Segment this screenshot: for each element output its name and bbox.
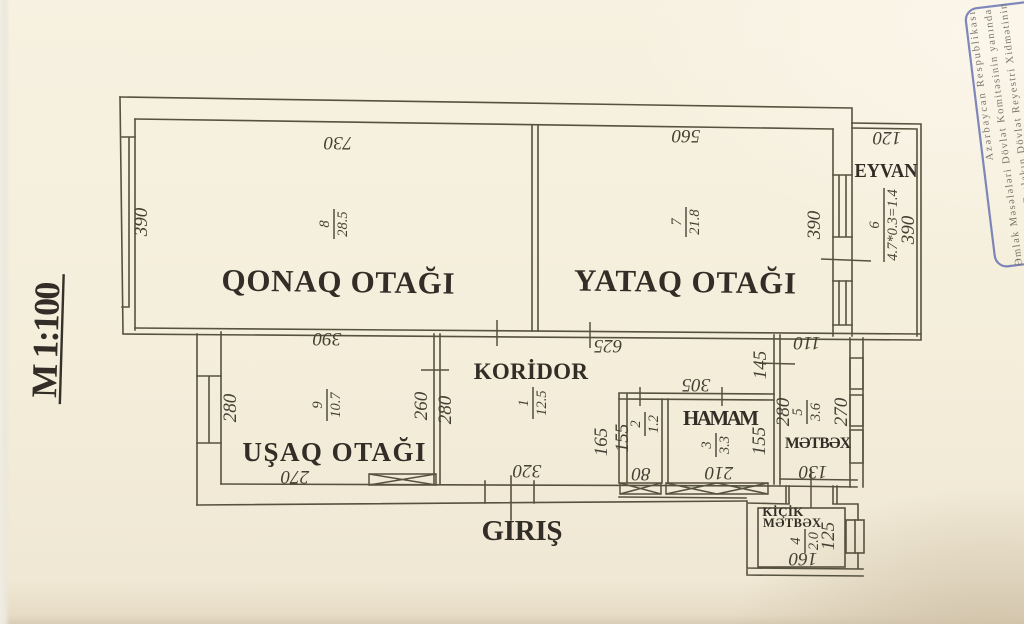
svg-text:160: 160: [788, 548, 817, 569]
svg-text:9: 9: [310, 401, 326, 409]
svg-text:10.7: 10.7: [328, 392, 344, 418]
svg-text:4: 4: [788, 537, 804, 544]
svg-text:12.5: 12.5: [534, 390, 550, 415]
svg-text:UŞAQ OTAĞI: UŞAQ OTAĞI: [243, 437, 426, 467]
svg-text:MƏTBƏX: MƏTBƏX: [763, 516, 821, 530]
svg-text:155: 155: [749, 427, 770, 456]
svg-text:280: 280: [220, 393, 241, 422]
svg-text:80: 80: [631, 463, 651, 484]
svg-text:305: 305: [682, 374, 712, 395]
svg-text:280: 280: [773, 397, 794, 426]
svg-text:560: 560: [671, 125, 700, 146]
svg-text:3.3: 3.3: [717, 436, 733, 455]
svg-text:HAMAM: HAMAM: [683, 406, 759, 430]
svg-text:390: 390: [898, 215, 919, 245]
svg-text:390: 390: [312, 328, 342, 349]
svg-text:3.6: 3.6: [808, 402, 824, 422]
svg-text:KORİDOR: KORİDOR: [474, 359, 589, 384]
svg-text:110: 110: [793, 332, 821, 353]
svg-text:EYVAN: EYVAN: [855, 160, 919, 182]
svg-text:260: 260: [411, 391, 432, 420]
svg-text:120: 120: [872, 127, 901, 148]
svg-text:1: 1: [516, 399, 532, 406]
svg-text:GIRIŞ: GIRIŞ: [482, 515, 563, 547]
svg-text:165: 165: [591, 428, 612, 457]
svg-text:270: 270: [831, 397, 852, 426]
svg-text:730: 730: [323, 132, 352, 153]
svg-text:28.5: 28.5: [335, 211, 351, 236]
svg-text:130: 130: [798, 461, 827, 482]
svg-text:320: 320: [512, 460, 542, 481]
svg-text:MƏTBƏX: MƏTBƏX: [785, 435, 852, 452]
svg-text:145: 145: [750, 351, 771, 380]
svg-text:3: 3: [699, 441, 715, 449]
svg-text:21.8: 21.8: [687, 209, 703, 235]
svg-text:125: 125: [818, 522, 839, 551]
svg-text:390: 390: [804, 210, 825, 240]
svg-text:8: 8: [317, 220, 333, 228]
svg-text:390: 390: [131, 207, 152, 237]
svg-text:280: 280: [435, 395, 456, 424]
svg-text:7: 7: [669, 218, 685, 226]
svg-text:625: 625: [594, 335, 623, 356]
svg-text:155: 155: [612, 424, 633, 453]
svg-text:270: 270: [280, 466, 309, 487]
svg-text:1.2: 1.2: [646, 415, 662, 433]
svg-text:QONAQ OTAĞI: QONAQ OTAĞI: [221, 262, 454, 300]
svg-text:210: 210: [704, 462, 733, 483]
svg-text:YATAQ OTAĞI: YATAQ OTAĞI: [574, 262, 796, 300]
svg-text:6: 6: [867, 221, 883, 229]
